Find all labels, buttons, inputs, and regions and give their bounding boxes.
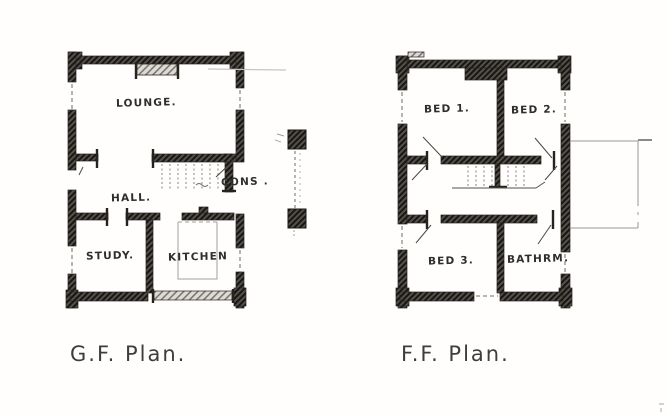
ff-bed1-bed2-divider	[497, 80, 504, 158]
room-label-bed3: BED 3.	[428, 254, 474, 267]
gf-stairs	[162, 164, 218, 189]
gf-top-wall	[80, 56, 232, 64]
ff-chimney-breast	[465, 68, 507, 80]
ff-window-dashes	[402, 92, 565, 296]
room-label-bathroom: BATHRM.	[507, 252, 569, 266]
room-label-hall: HALL.	[111, 191, 152, 204]
chimney-stack	[208, 69, 306, 238]
room-label-bed1: BED 1.	[424, 102, 470, 115]
gf-plan-walls	[66, 52, 246, 308]
room-label-study: STUDY.	[86, 249, 135, 262]
ff-landing-wall-lower	[441, 215, 537, 223]
gf-door-swings	[79, 160, 234, 177]
scanned-floor-plan-page: LOUNGE. CONS . HALL. STUDY. KITCHEN BED …	[0, 0, 669, 416]
ff-landing-wall-upper	[441, 156, 541, 164]
room-label-kitchen: KITCHEN	[168, 250, 228, 264]
gf-front-window	[137, 64, 177, 75]
gf-window-dashes	[72, 84, 240, 274]
stair-direction-arrow	[536, 182, 545, 188]
chimney-bottom-pier	[288, 209, 306, 228]
ff-stair-newel	[495, 164, 500, 188]
gf-stairs-top-wall	[152, 154, 232, 162]
ff-door-swings	[412, 137, 557, 244]
room-label-bed2: BED 2.	[511, 103, 557, 116]
chimney-top-pier	[288, 130, 306, 149]
gf-study-kitchen-divider	[146, 220, 153, 293]
ff-bed3-bath-divider	[497, 223, 504, 293]
gf-lounge-hall-stub	[76, 154, 98, 161]
gf-kitchen-top-wall	[182, 213, 234, 220]
ff-plan-title: F.F. Plan.	[401, 342, 510, 366]
faint-scan-line	[208, 69, 286, 70]
scan-smudge	[659, 404, 664, 412]
gf-bottom-window-band	[154, 291, 232, 300]
room-label-conservatory: CONS .	[221, 175, 269, 188]
room-label-lounge: LOUNGE.	[116, 96, 177, 110]
gf-hall-study-stub	[76, 213, 108, 220]
annex-outline	[570, 140, 652, 228]
ff-top-wall	[407, 60, 563, 68]
gf-plan-title: G.F. Plan.	[70, 342, 186, 366]
gf-corner-post	[234, 288, 246, 306]
